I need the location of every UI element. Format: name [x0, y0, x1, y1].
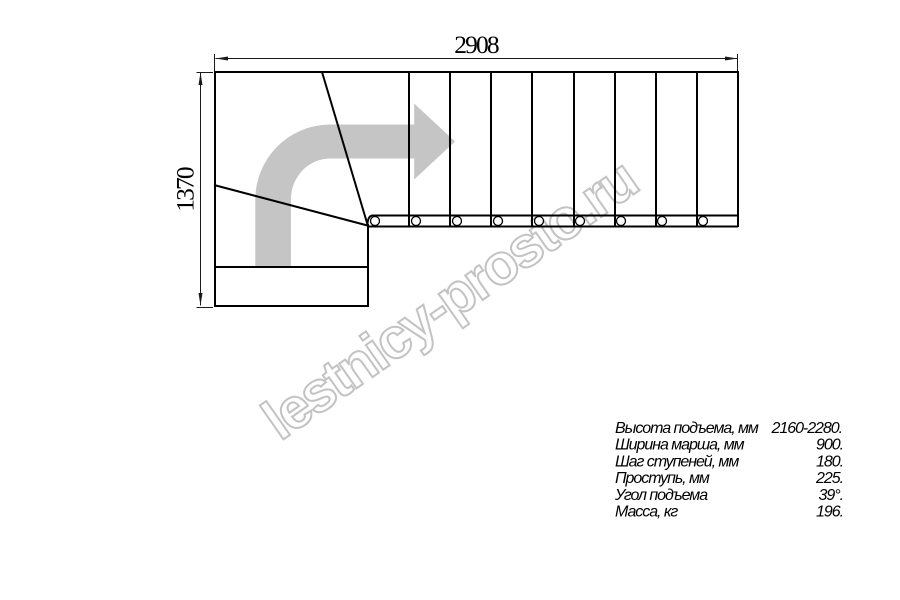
svg-text:180.: 180. [816, 453, 843, 470]
svg-text:Проступь, мм: Проступь, мм [615, 470, 710, 487]
svg-text:Ширина марша, мм: Ширина марша, мм [615, 437, 745, 454]
svg-text:Масса, кг: Масса, кг [615, 504, 678, 521]
svg-text:Высота подъема, мм: Высота подъема, мм [615, 420, 759, 437]
svg-text:900.: 900. [816, 437, 843, 454]
svg-text:39°.: 39°. [819, 487, 843, 504]
svg-text:Шаг ступеней, мм: Шаг ступеней, мм [615, 453, 739, 470]
svg-text:225.: 225. [815, 470, 843, 487]
svg-text:Угол подъема: Угол подъема [614, 487, 708, 504]
svg-text:196.: 196. [816, 504, 843, 521]
svg-text:1370: 1370 [171, 167, 200, 212]
svg-text:2160-2280.: 2160-2280. [771, 420, 842, 437]
svg-text:2908: 2908 [454, 30, 499, 59]
